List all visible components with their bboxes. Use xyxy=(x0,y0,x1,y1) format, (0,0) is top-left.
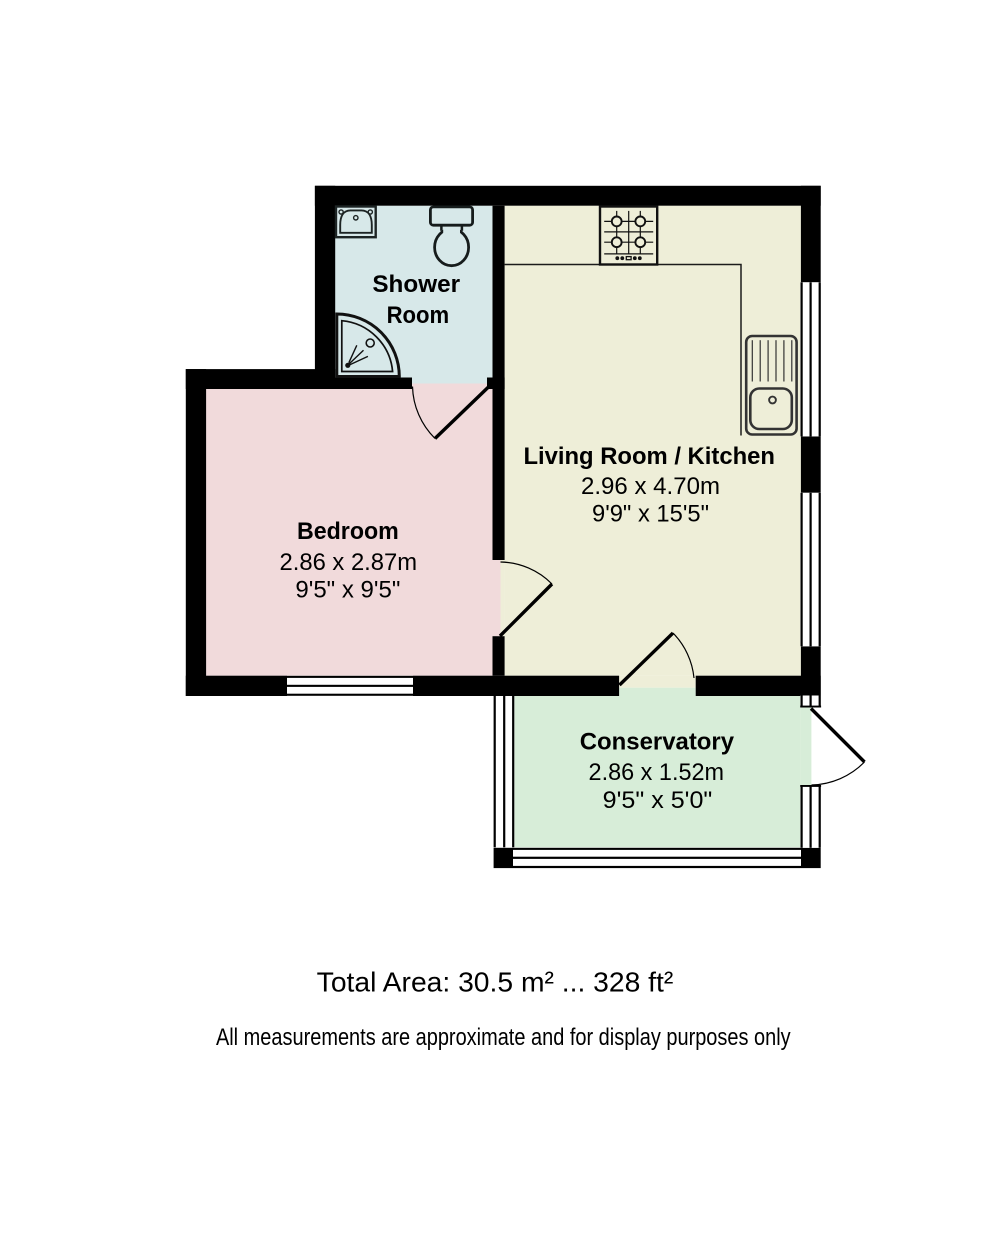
svg-text:9'9" x 15'5": 9'9" x 15'5" xyxy=(592,501,709,528)
svg-text:Room: Room xyxy=(387,302,450,329)
svg-text:All measurements are approxima: All measurements are approximate and for… xyxy=(216,1024,791,1051)
svg-text:Conservatory: Conservatory xyxy=(580,729,735,756)
svg-text:9'5" x 9'5": 9'5" x 9'5" xyxy=(295,577,400,604)
svg-text:Total Area: 30.5 m² ... 328 ft: Total Area: 30.5 m² ... 328 ft² xyxy=(317,966,674,997)
svg-text:Shower: Shower xyxy=(372,271,460,298)
svg-text:2.86 x 2.87m: 2.86 x 2.87m xyxy=(280,549,418,576)
svg-text:Bedroom: Bedroom xyxy=(297,518,399,545)
svg-text:9'5" x 5'0": 9'5" x 5'0" xyxy=(603,787,713,814)
svg-text:2.96 x 4.70m: 2.96 x 4.70m xyxy=(581,473,720,500)
svg-text:2.86 x 1.52m: 2.86 x 1.52m xyxy=(589,759,725,786)
svg-text:Living Room / Kitchen: Living Room / Kitchen xyxy=(523,443,775,470)
